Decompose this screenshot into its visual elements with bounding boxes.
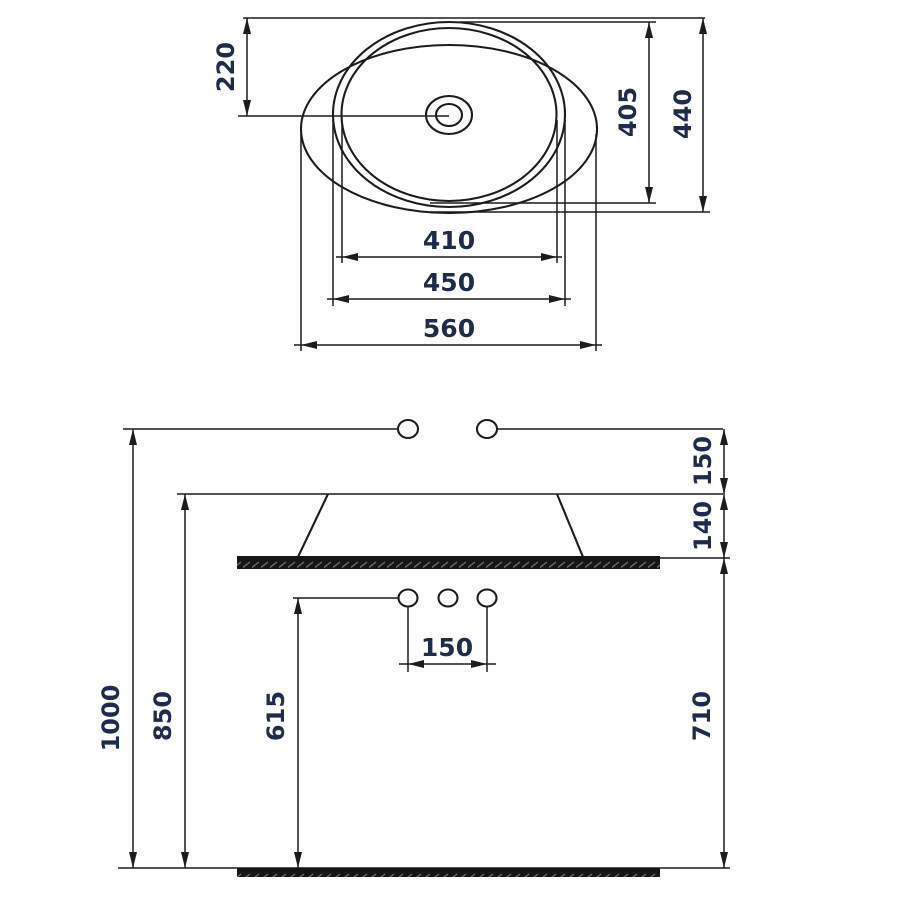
dim-rim-height: 850 [149, 494, 189, 868]
dim-220-label: 220 [212, 42, 240, 92]
countertop-surface [237, 556, 730, 569]
dim-140-label: 140 [689, 501, 717, 551]
side-view: 150 1000 850 615 [97, 420, 730, 877]
drain-inner [436, 104, 462, 126]
faucet-hole-left [398, 420, 418, 438]
dim-410-label: 410 [423, 226, 475, 255]
dim-150-spacing-label: 150 [421, 633, 473, 662]
drawing-canvas: 220 405 440 410 450 [0, 0, 900, 900]
basin-outer-oval [301, 45, 597, 213]
top-view: 220 405 440 410 450 [212, 18, 710, 351]
dim-850-label: 850 [149, 691, 177, 741]
dim-overall-depth: 440 [669, 18, 707, 212]
dim-faucet-height: 1000 [97, 429, 137, 868]
dim-hole-spacing: 150 [399, 633, 496, 668]
top-view-extension-lines [238, 18, 710, 351]
dim-bowl-depth: 405 [614, 22, 653, 203]
faucet-hole-right [477, 420, 497, 438]
drain-outer [426, 96, 472, 134]
faucet-line [123, 420, 723, 438]
bowl-rim-inner [342, 28, 557, 201]
dim-bowl-outer-width: 450 [327, 268, 571, 303]
washbasin-technical-drawing: 220 405 440 410 450 [0, 0, 900, 900]
dim-150-right-label: 150 [689, 436, 717, 486]
dim-405-label: 405 [614, 87, 642, 137]
bowl-rim-outer [333, 22, 565, 207]
dim-450-label: 450 [423, 268, 475, 297]
dim-center-from-top: 220 [212, 18, 251, 116]
dim-bowl-inner-width: 410 [336, 226, 562, 261]
dim-615-label: 615 [262, 691, 290, 741]
dim-overall-width: 560 [294, 314, 602, 349]
dim-1000-label: 1000 [97, 685, 125, 752]
supply-hole-left [399, 590, 418, 607]
dim-supply-height: 615 [262, 598, 302, 868]
basin-profile [298, 494, 583, 557]
dim-right-chain: 150 140 710 [688, 429, 728, 868]
floor-surface [118, 868, 730, 877]
supply-hole-right [478, 590, 497, 607]
dim-560-label: 560 [423, 314, 475, 343]
dim-710-label: 710 [688, 691, 716, 741]
dim-440-label: 440 [669, 89, 697, 139]
supply-hole-center [439, 590, 458, 607]
